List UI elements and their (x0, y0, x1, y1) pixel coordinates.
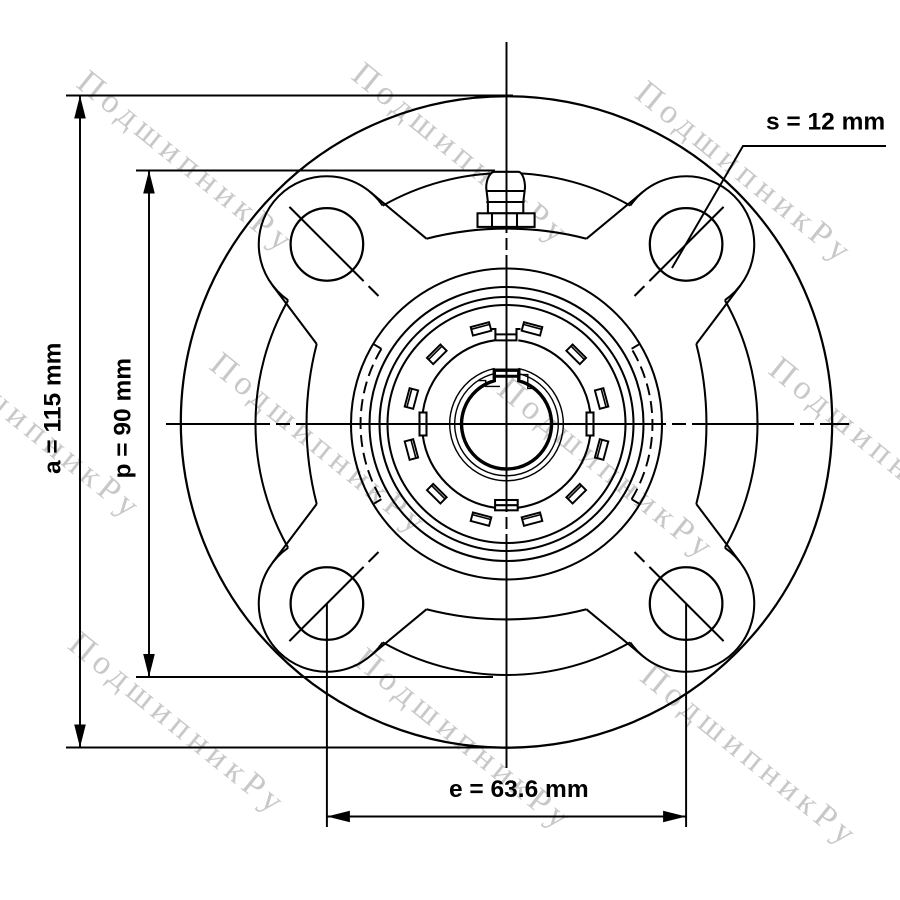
svg-text:ПодшипникРу: ПодшипникРу (61, 625, 294, 824)
svg-text:ПодшипникРу: ПодшипникРу (203, 345, 436, 544)
svg-text:ПодшипникРу: ПодшипникРу (345, 55, 578, 254)
svg-text:ПодшипникРу: ПодшипникРу (70, 63, 303, 262)
svg-text:p = 90 mm: p = 90 mm (110, 358, 137, 479)
svg-text:e = 63.6 mm: e = 63.6 mm (449, 776, 589, 803)
svg-text:a = 115 mm: a = 115 mm (40, 343, 67, 474)
svg-text:ПодшипникРу: ПодшипникРу (633, 657, 866, 856)
svg-text:s = 12 mm: s = 12 mm (766, 109, 885, 136)
